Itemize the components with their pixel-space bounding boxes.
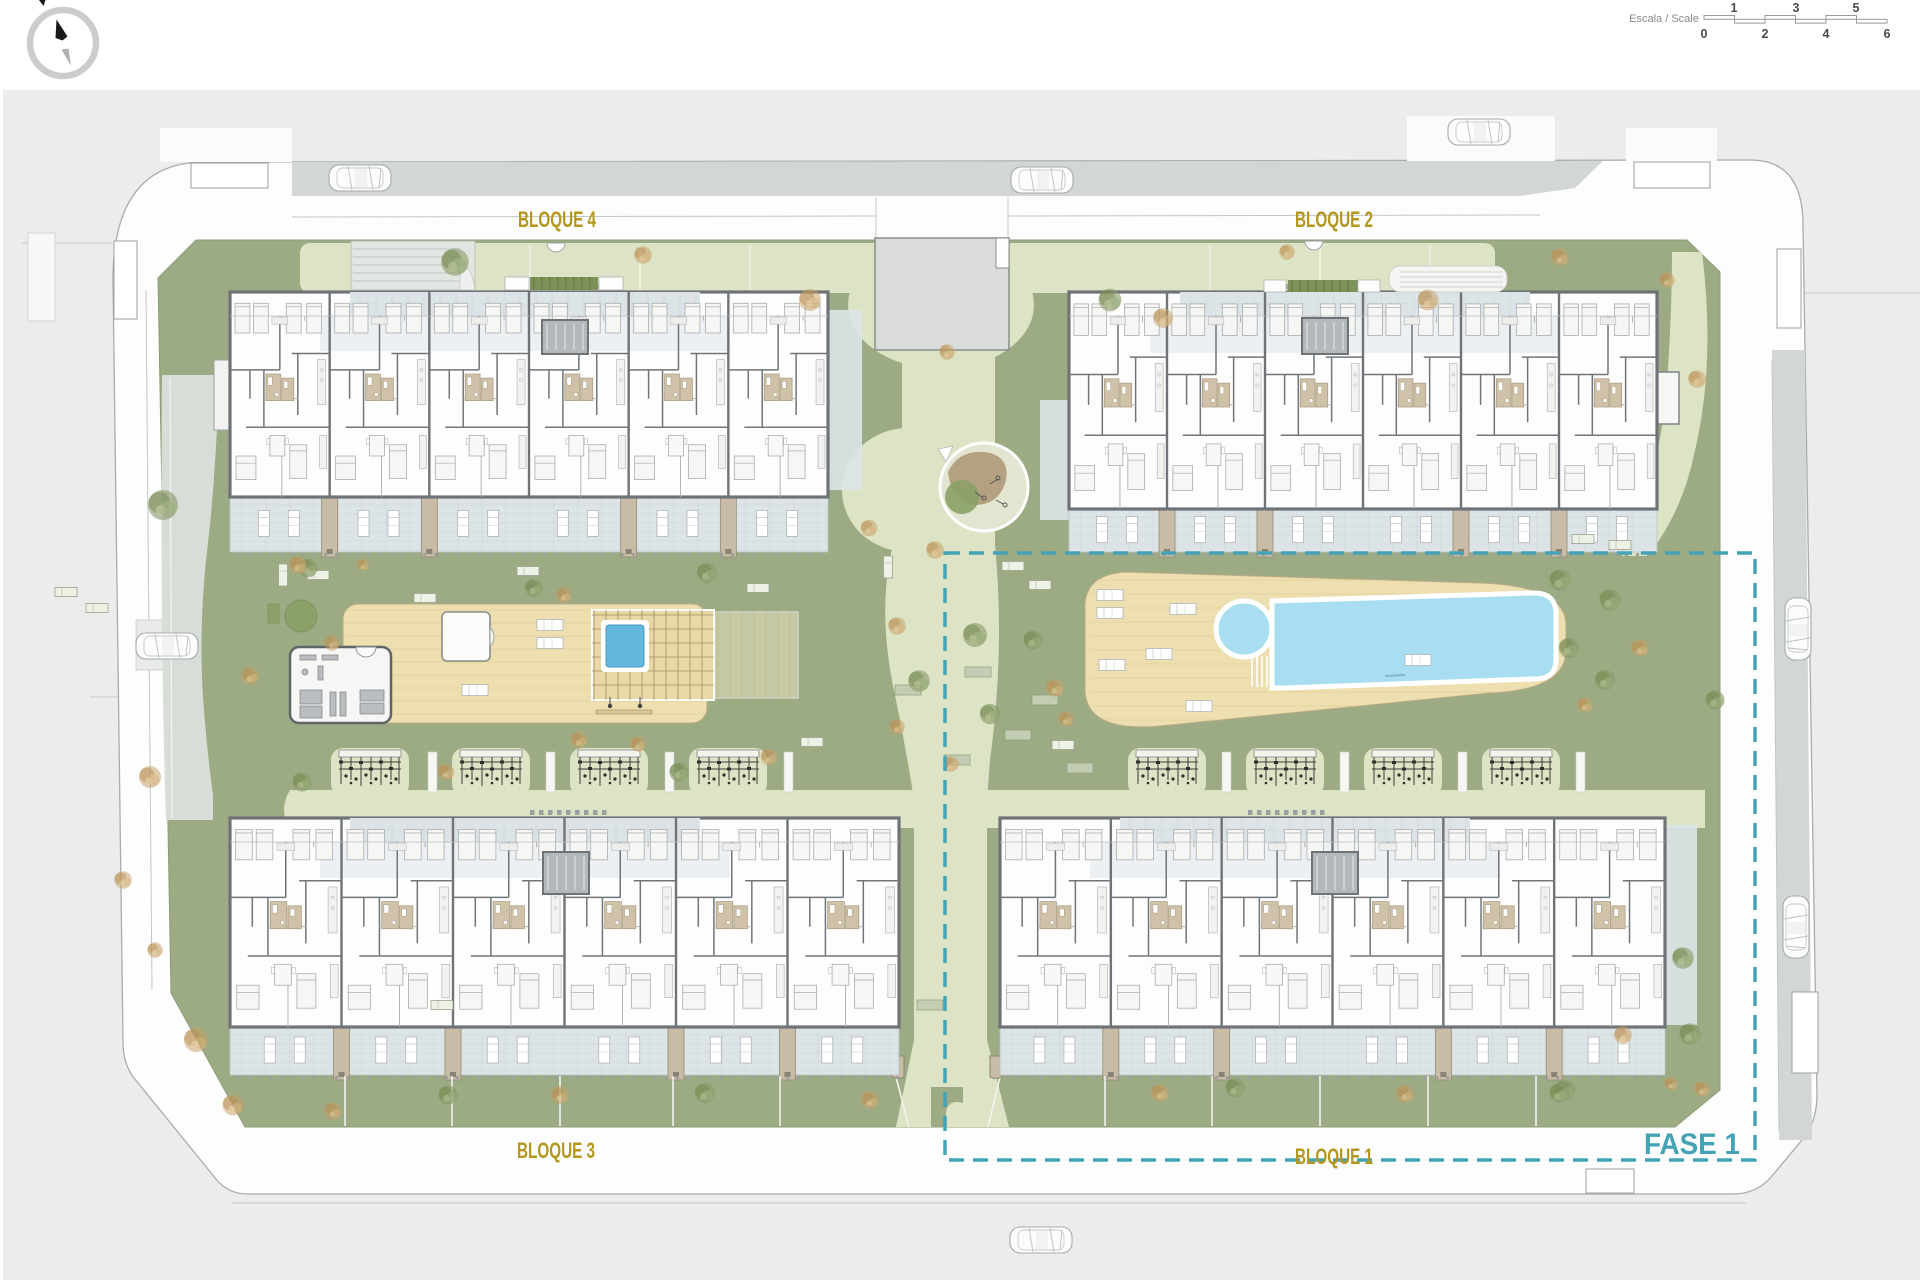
svg-text:3: 3 [1793, 1, 1800, 15]
svg-text:5: 5 [1853, 1, 1860, 15]
svg-text:BLOQUE 4: BLOQUE 4 [518, 207, 597, 232]
svg-text:1: 1 [1731, 1, 1738, 15]
svg-text:Escala / Scale: Escala / Scale [1629, 13, 1699, 25]
svg-text:FASE 1: FASE 1 [1644, 1128, 1740, 1161]
svg-text:2: 2 [1762, 27, 1769, 41]
svg-text:BLOQUE 1: BLOQUE 1 [1295, 1144, 1373, 1169]
svg-text:BLOQUE 3: BLOQUE 3 [517, 1138, 595, 1163]
svg-text:6: 6 [1884, 27, 1891, 41]
svg-text:BLOQUE 2: BLOQUE 2 [1295, 207, 1373, 232]
svg-text:4: 4 [1823, 27, 1830, 41]
svg-text:0: 0 [1701, 27, 1708, 41]
